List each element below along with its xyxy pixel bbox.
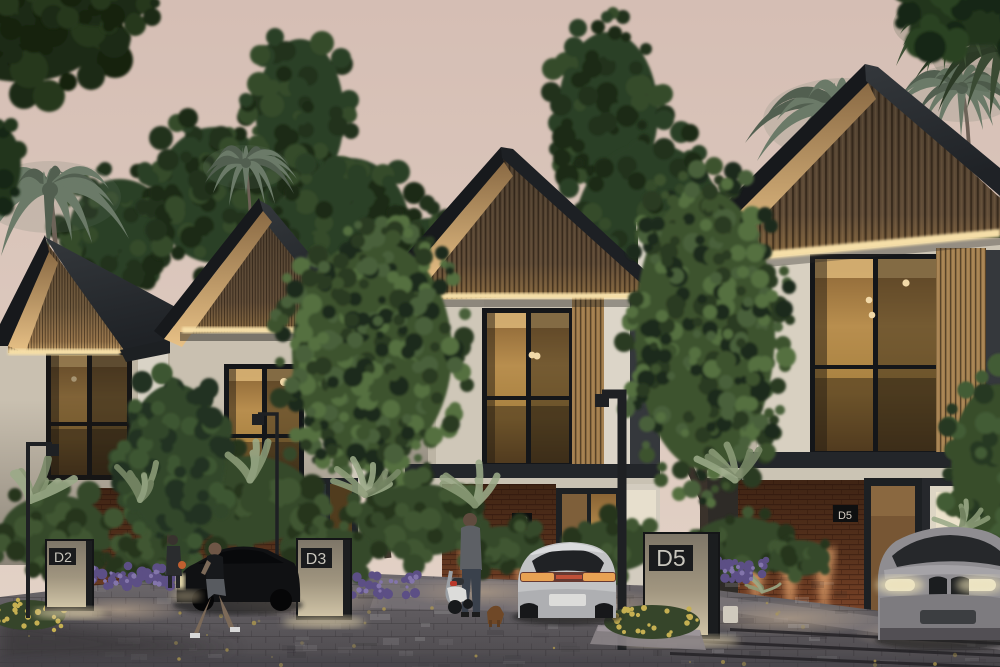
svg-text:D5: D5 [656,545,685,571]
svg-text:D3: D3 [306,551,327,568]
svg-text:D2: D2 [54,549,72,565]
svg-text:D5: D5 [838,510,852,522]
